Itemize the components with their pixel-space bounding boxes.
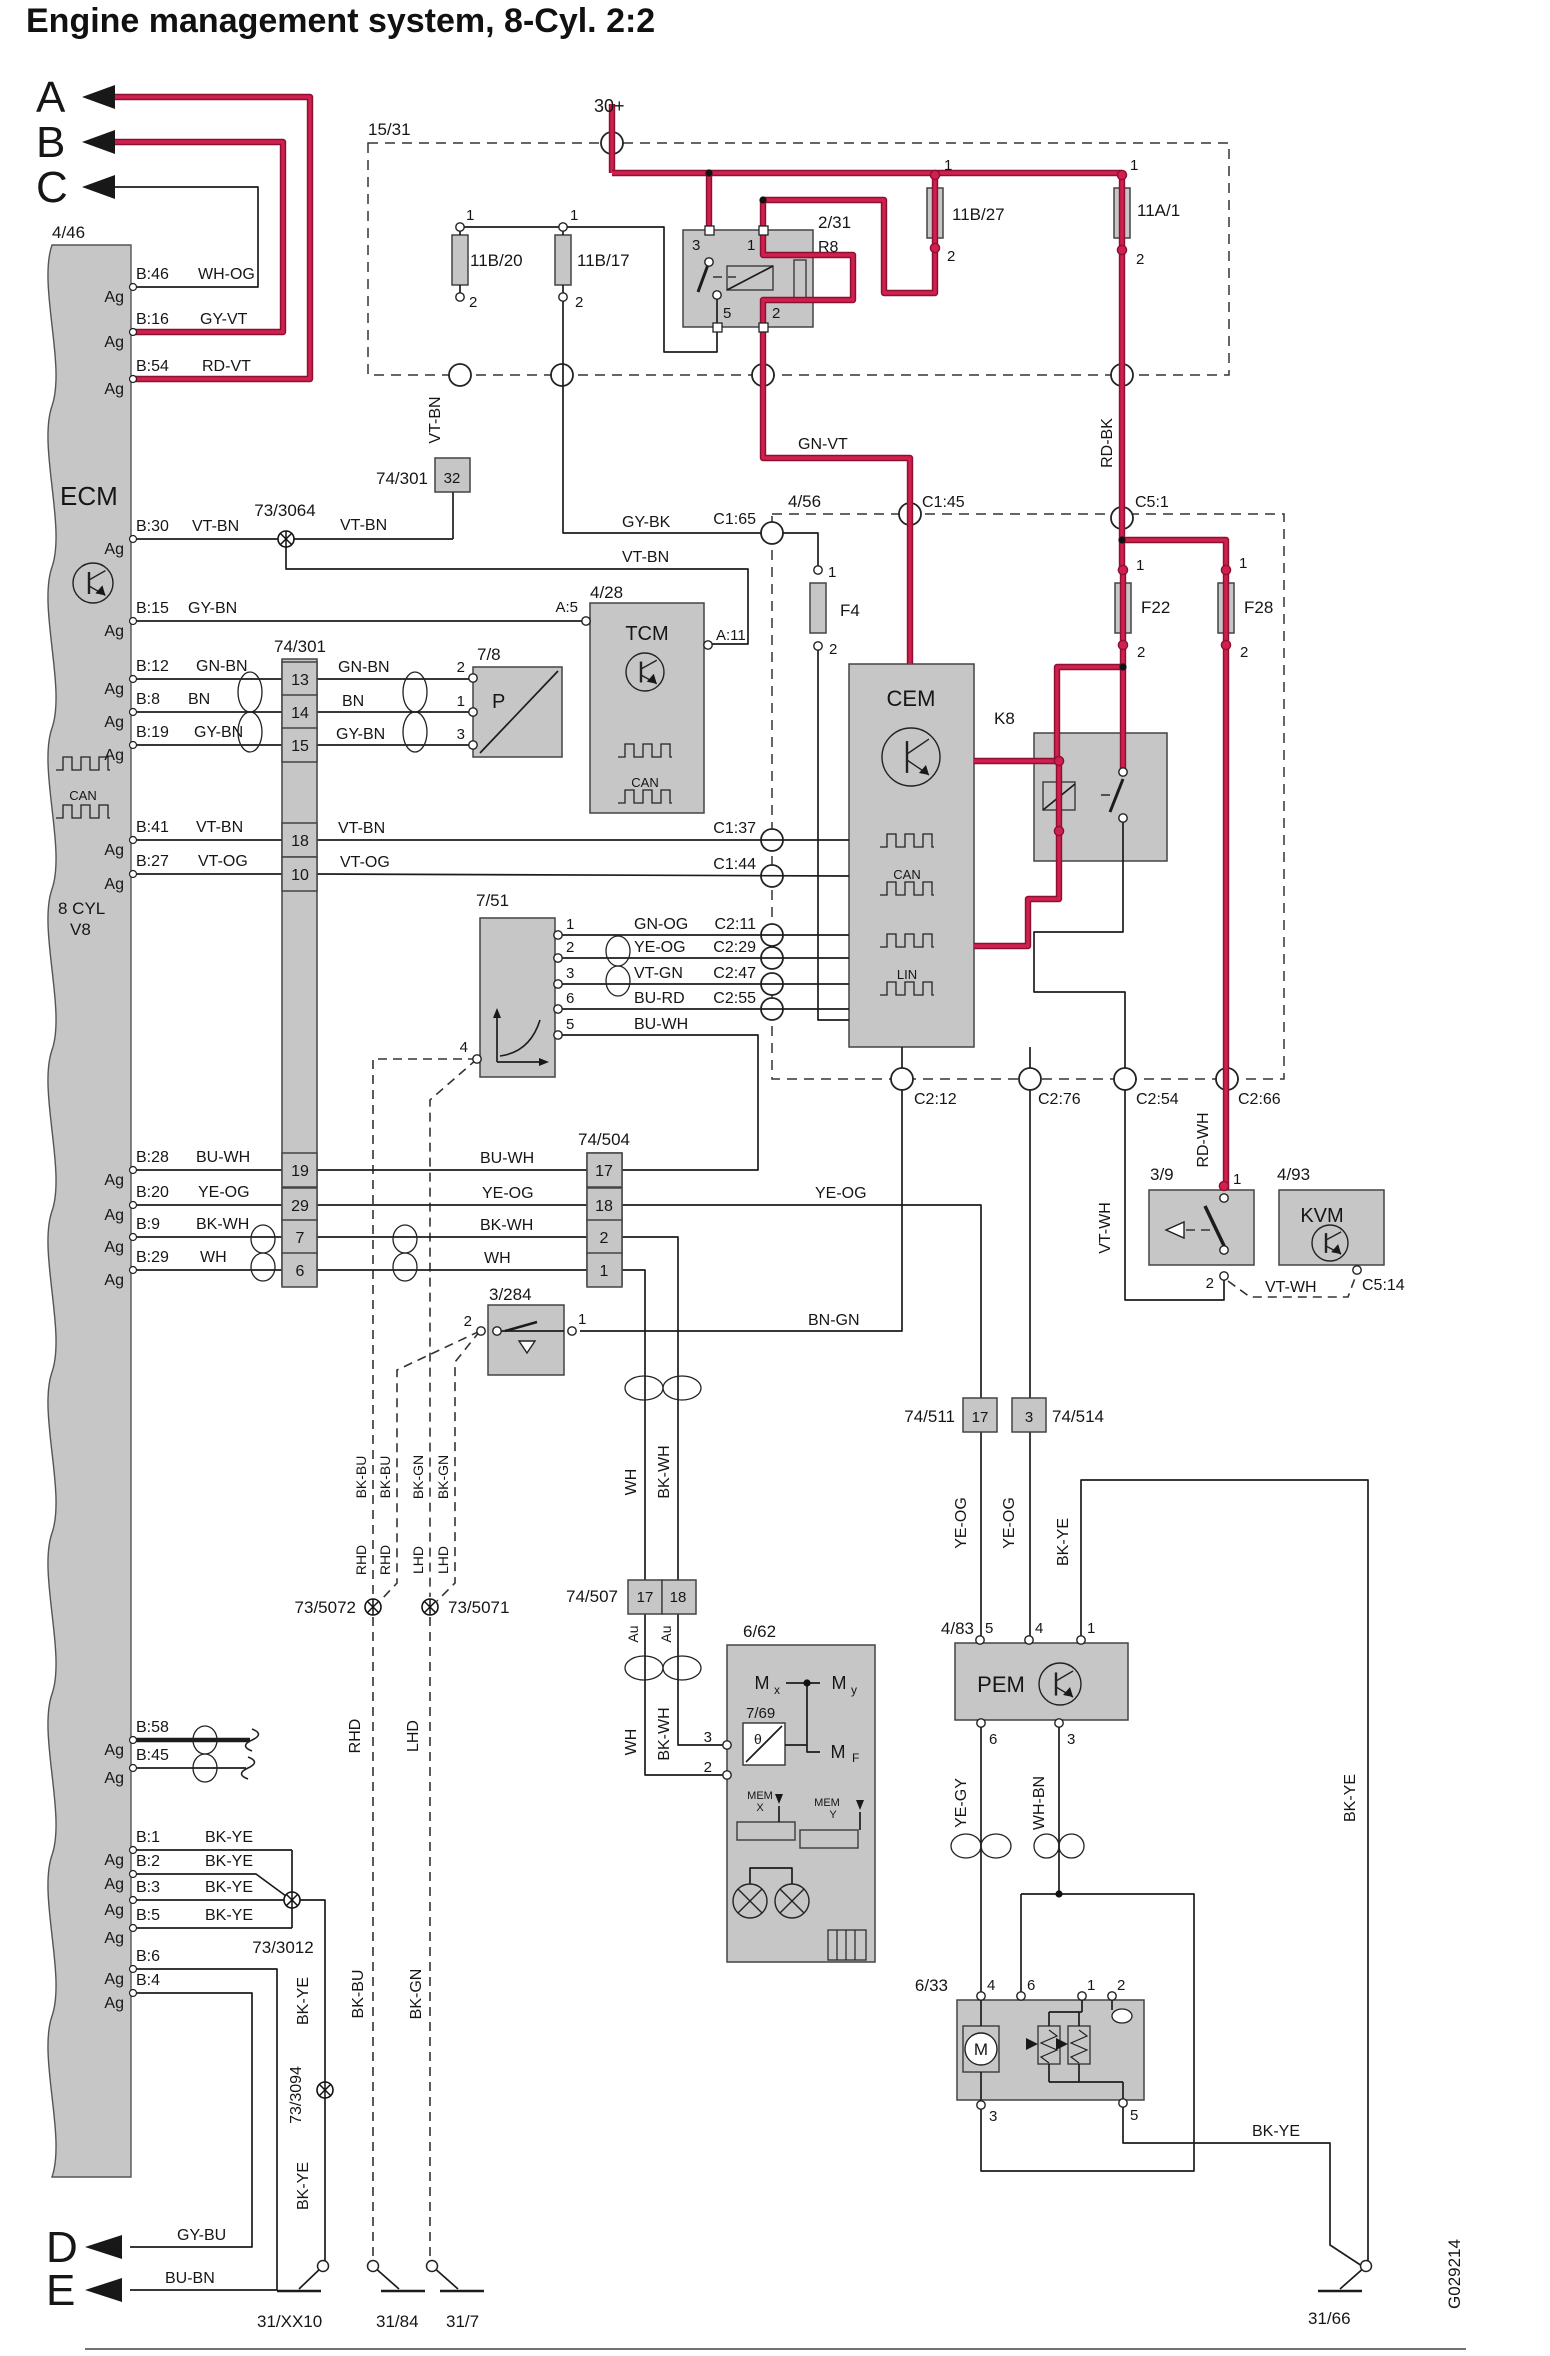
diagram-label: MEM bbox=[814, 1797, 840, 1809]
diagram-label: 7 bbox=[296, 1230, 305, 1247]
diagram-label: 18 bbox=[291, 833, 309, 850]
diagram-label: 73/5072 bbox=[295, 1598, 356, 1617]
wire-color-label: BK-YE bbox=[205, 1829, 253, 1846]
power-pin bbox=[1221, 640, 1230, 649]
diagram-label: VT-BN bbox=[338, 820, 385, 837]
diagram-label: BK-YE bbox=[1055, 1518, 1072, 1566]
diagram-label: C2:55 bbox=[713, 990, 756, 1007]
ecm-pin-B:16 bbox=[130, 329, 137, 336]
diagram-label: VT-BN bbox=[340, 517, 387, 534]
page-title: Engine management system, 8-Cyl. 2:2 bbox=[26, 2, 655, 41]
power-wire-outline bbox=[763, 327, 910, 664]
junction-dot bbox=[1118, 536, 1125, 543]
diagram-label: C2:66 bbox=[1238, 1091, 1281, 1108]
twisted-pair-icon bbox=[625, 1376, 663, 1400]
ecm-pin-name: B:28 bbox=[136, 1149, 169, 1166]
component-switch-3/9 bbox=[1149, 1190, 1254, 1265]
diagram-label: BK-GN bbox=[435, 1455, 451, 1499]
diagram-label: 2 bbox=[1240, 644, 1248, 661]
diagram-label: VT-BN bbox=[622, 549, 669, 566]
pin-circle bbox=[1017, 1992, 1025, 2000]
ecm-pin-ag-label: Ag bbox=[104, 1930, 124, 1947]
diagram-label: 3/9 bbox=[1150, 1165, 1174, 1184]
diagram-label: E bbox=[46, 2266, 75, 2315]
diagram-label: 18 bbox=[670, 1589, 687, 1606]
power-pin bbox=[930, 243, 939, 252]
diagram-label: K8 bbox=[994, 709, 1015, 728]
component-coil2-6/33 bbox=[1068, 2026, 1090, 2064]
ecm-pin-name: B:8 bbox=[136, 691, 160, 708]
diagram-label: YE-OG bbox=[815, 1185, 867, 1202]
diagram-label: 18 bbox=[595, 1198, 613, 1215]
diagram-label: BK-BU bbox=[353, 1456, 369, 1499]
ecm-pin-ag-label: Ag bbox=[104, 1207, 124, 1224]
diagram-label: F28 bbox=[1244, 598, 1273, 617]
diagram-label: 15 bbox=[291, 738, 309, 755]
arrow-icon bbox=[82, 130, 115, 154]
diagram-label: 1 bbox=[1136, 557, 1144, 574]
diagram-label: 4/46 bbox=[52, 223, 85, 242]
ecm-pin-name: B:45 bbox=[136, 1747, 169, 1764]
diagram-label: B bbox=[36, 118, 65, 167]
pin-circle bbox=[814, 566, 822, 574]
diagram-label: M bbox=[755, 1673, 770, 1693]
diagram-label: YE-OG bbox=[953, 1497, 970, 1549]
diagram-label: 19 bbox=[291, 1163, 309, 1180]
diagram-label: 2 bbox=[566, 939, 574, 956]
component-pot-memx bbox=[737, 1822, 795, 1840]
diagram-label: 6 bbox=[566, 990, 574, 1007]
diagram-label: C2:76 bbox=[1038, 1091, 1081, 1108]
diagram-label: 7/8 bbox=[477, 645, 501, 664]
ecm-pin-name: B:12 bbox=[136, 658, 169, 675]
ecm-pin-B:19 bbox=[130, 742, 137, 749]
ecm-pin-B:9 bbox=[130, 1234, 137, 1241]
diagram-label: 2 bbox=[772, 305, 780, 322]
ecm-pin-name: B:2 bbox=[136, 1853, 160, 1870]
diagram-label: X bbox=[756, 1802, 764, 1814]
diagram-label: 1 bbox=[1087, 1977, 1095, 1994]
twisted-pair-icon bbox=[606, 966, 630, 996]
diagram-label: 2 bbox=[1206, 1275, 1214, 1292]
diagram-label: WH bbox=[623, 1469, 640, 1496]
diagram-label: 3 bbox=[1067, 1731, 1075, 1748]
pin-circle bbox=[456, 223, 464, 231]
diagram-label: 11A/1 bbox=[1137, 201, 1180, 220]
wire bbox=[558, 1035, 758, 1170]
diagram-label: 14 bbox=[291, 705, 309, 722]
ecm-pin-B:58 bbox=[130, 1737, 137, 1744]
relay-pin-square bbox=[705, 226, 714, 235]
diagram-label: 74/301 bbox=[274, 637, 326, 656]
diagram-label: CEM bbox=[887, 686, 936, 711]
diagram-label: GN-BN bbox=[338, 659, 390, 676]
diagram-label: 4 bbox=[987, 1977, 995, 1994]
twisted-pair-icon bbox=[1059, 1834, 1084, 1858]
pin-circle bbox=[554, 931, 562, 939]
ground-terminal bbox=[318, 2261, 329, 2272]
pin-circle bbox=[977, 1992, 985, 2000]
wire bbox=[563, 297, 761, 533]
pin-circle bbox=[469, 708, 477, 716]
diagram-label: 74/301 bbox=[376, 469, 428, 488]
ecm-pin-B:29 bbox=[130, 1267, 137, 1274]
ecm-pin-ag-label: Ag bbox=[104, 1272, 124, 1289]
diagram-label: 17 bbox=[972, 1409, 989, 1426]
ecm-pin-B:3 bbox=[130, 1897, 137, 1904]
wire-color-label: BN bbox=[188, 691, 210, 708]
ground-terminal bbox=[427, 2261, 438, 2272]
diagram-label: 1 bbox=[600, 1263, 609, 1280]
diagram-label: 4 bbox=[460, 1039, 468, 1056]
diagram-label: θ bbox=[754, 1731, 762, 1747]
ecm-pin-name: B:54 bbox=[136, 358, 169, 375]
ecm-pin-name: B:9 bbox=[136, 1216, 160, 1233]
ecm-pin-name: B:20 bbox=[136, 1184, 169, 1201]
power-pin bbox=[1219, 1181, 1228, 1190]
twisted-pair-icon bbox=[403, 712, 427, 752]
wire-color-label: VT-BN bbox=[196, 819, 243, 836]
diagram-label: 6 bbox=[1027, 1977, 1035, 1994]
pin-circle bbox=[1108, 1992, 1116, 2000]
diagram-label: 2 bbox=[947, 248, 955, 265]
twisted-pair-icon bbox=[606, 936, 630, 966]
wire-color-label: GY-BN bbox=[188, 600, 237, 617]
pin-circle bbox=[456, 293, 464, 301]
sensor-icon bbox=[1112, 2009, 1132, 2023]
ecm-pin-B:4 bbox=[130, 1990, 137, 1997]
diagram-label: 5 bbox=[723, 305, 731, 322]
diagram-label: BU-BN bbox=[165, 2270, 215, 2287]
diagram-label: A bbox=[36, 73, 66, 122]
diagram-label: WH bbox=[623, 1729, 640, 1756]
wiring-diagram-page: Engine management system, 8-Cyl. 2:2 CAN… bbox=[0, 0, 1550, 2356]
pin-circle bbox=[1025, 1636, 1033, 1644]
arrow-icon bbox=[85, 2278, 122, 2302]
wire-color-label: GY-BN bbox=[194, 724, 243, 741]
diagram-label: BK-BU bbox=[377, 1456, 393, 1499]
wire bbox=[818, 646, 849, 1020]
diagram-label: 4/56 bbox=[788, 492, 821, 511]
diagram-label: GY-BK bbox=[622, 514, 671, 531]
junction-dot bbox=[1055, 1890, 1062, 1897]
diagram-label: Au bbox=[658, 1625, 674, 1642]
diagram-label: 6/33 bbox=[915, 1976, 948, 1995]
diagram-label: 1 bbox=[466, 207, 474, 224]
ecm-pin-ag-label: Ag bbox=[104, 1172, 124, 1189]
diagram-label: 15/31 bbox=[368, 120, 411, 139]
relay-pin-square bbox=[713, 323, 722, 332]
diagram-label: BK-YE bbox=[295, 2162, 312, 2210]
component-kvm-4/93 bbox=[1279, 1190, 1384, 1265]
diagram-label: RHD bbox=[377, 1545, 393, 1575]
wire bbox=[1081, 1480, 1368, 2262]
diagram-label: 74/511 bbox=[904, 1407, 955, 1426]
diagram-label: TCM bbox=[625, 623, 668, 645]
twisted-pair-icon bbox=[1034, 1834, 1059, 1858]
wire bbox=[622, 1270, 727, 1775]
ecm-pin-ag-label: Ag bbox=[104, 714, 124, 731]
diagram-label: 2 bbox=[704, 1759, 712, 1776]
diagram-label: BK-YE bbox=[1252, 2123, 1300, 2140]
pin-circle bbox=[554, 1031, 562, 1039]
diagram-label: 17 bbox=[637, 1589, 654, 1606]
wiring-diagram-canvas: CANCANCANLINMAgB:46WH-OGAgB:16GY-VTAgB:5… bbox=[0, 0, 1550, 2356]
diagram-label: 2 bbox=[575, 294, 583, 311]
diagram-label: RD-BK bbox=[1099, 418, 1116, 468]
diagram-label: BU-WH bbox=[634, 1016, 688, 1033]
diagram-label: ECM bbox=[60, 481, 118, 511]
diagram-label: BK-YE bbox=[1342, 1774, 1359, 1822]
diagram-label: Au bbox=[625, 1625, 641, 1642]
diagram-label: 32 bbox=[444, 470, 461, 487]
arrow-icon bbox=[85, 2235, 122, 2259]
ecm-pin-B:54 bbox=[130, 376, 137, 383]
diagram-label: M bbox=[831, 1742, 846, 1762]
bus-label: CAN bbox=[631, 775, 658, 790]
diagram-label: GY-BU bbox=[177, 2227, 226, 2244]
wire bbox=[580, 1090, 902, 1331]
junction-dot bbox=[1119, 663, 1126, 670]
diagram-label: R8 bbox=[818, 239, 839, 256]
terminal-circle bbox=[1019, 1068, 1041, 1090]
diagram-label: 10 bbox=[291, 867, 309, 884]
diagram-label: WH-BN bbox=[1031, 1776, 1048, 1830]
relay-pin-square bbox=[759, 226, 768, 235]
power-pin bbox=[930, 170, 939, 179]
diagram-label: 74/514 bbox=[1052, 1407, 1104, 1426]
pin-circle bbox=[554, 1005, 562, 1013]
power-pin bbox=[1118, 565, 1127, 574]
diagram-label: 1 bbox=[566, 916, 574, 933]
diagram-label: D bbox=[46, 2223, 78, 2272]
diagram-label: 1 bbox=[1239, 555, 1247, 572]
diagram-label: 3 bbox=[1025, 1409, 1033, 1426]
diagram-label: C bbox=[36, 163, 68, 212]
component-switch-3/284 bbox=[488, 1305, 564, 1375]
diagram-label: 13 bbox=[291, 672, 309, 689]
ground-terminal bbox=[1361, 2261, 1372, 2272]
ecm-pin-ag-label: Ag bbox=[104, 381, 124, 398]
diagram-label: 1 bbox=[578, 1311, 586, 1328]
bus-label: CAN bbox=[893, 867, 920, 882]
ecm-pin-ag-label: Ag bbox=[104, 876, 124, 893]
component-r8-resistor bbox=[794, 260, 806, 300]
diagram-label: GY-BN bbox=[336, 726, 385, 743]
ecm-pin-B:15 bbox=[130, 618, 137, 625]
ecm-pin-ag-label: Ag bbox=[104, 747, 124, 764]
power-pin bbox=[1118, 640, 1127, 649]
ecm-pin-name: B:58 bbox=[136, 1719, 169, 1736]
pin-circle bbox=[1078, 1992, 1086, 2000]
ecm-pin-B:30 bbox=[130, 536, 137, 543]
diagram-label: 8 CYL bbox=[58, 899, 105, 918]
diagram-label: 4 bbox=[1035, 1620, 1043, 1637]
twisted-pair-icon bbox=[251, 1253, 275, 1281]
ecm-pin-ag-label: Ag bbox=[104, 681, 124, 698]
bus-label: LIN bbox=[897, 967, 917, 982]
ecm-pin-name: B:29 bbox=[136, 1249, 169, 1266]
diagram-label: F4 bbox=[840, 601, 860, 620]
wire-color-label: BK-WH bbox=[196, 1216, 249, 1233]
component-fuse-11b17 bbox=[555, 235, 571, 285]
diagram-label: 5 bbox=[985, 1620, 993, 1637]
diagram-label: KVM bbox=[1300, 1205, 1343, 1227]
diagram-label: 1 bbox=[1087, 1620, 1095, 1637]
pin-circle bbox=[1220, 1194, 1228, 1202]
diagram-label: 31/XX10 bbox=[257, 2312, 322, 2331]
ecm-pin-ag-label: Ag bbox=[104, 541, 124, 558]
diagram-label: YE-OG bbox=[482, 1185, 534, 1202]
diagram-label: 2 bbox=[829, 641, 837, 658]
ecm-pin-name: B:41 bbox=[136, 819, 169, 836]
ecm-pin-name: B:5 bbox=[136, 1907, 160, 1924]
diagram-label: VT-WH bbox=[1097, 1202, 1114, 1254]
pin-circle bbox=[554, 980, 562, 988]
diagram-label: LHD bbox=[435, 1546, 451, 1574]
ecm-pin-ag-label: Ag bbox=[104, 623, 124, 640]
diagram-label: 1 bbox=[944, 157, 952, 174]
diagram-label: BK-WH bbox=[656, 1445, 673, 1498]
pin-circle bbox=[977, 2101, 985, 2109]
diagram-label: VT-WH bbox=[1265, 1279, 1317, 1296]
pin-circle bbox=[1220, 1272, 1228, 1280]
diagram-label: 4/28 bbox=[590, 583, 623, 602]
motor-label: M bbox=[974, 2040, 988, 2059]
component-pot-memy bbox=[800, 1830, 858, 1848]
pin-circle bbox=[814, 642, 822, 650]
bus-label: CAN bbox=[69, 788, 96, 803]
diagram-label: GN-OG bbox=[634, 916, 688, 933]
junction-dot bbox=[803, 1679, 810, 1686]
diagram-label: VT-GN bbox=[634, 965, 683, 982]
diagram-label: RHD bbox=[347, 1719, 364, 1754]
ecm-pin-B:8 bbox=[130, 709, 137, 716]
diagram-label: C2:29 bbox=[713, 939, 756, 956]
diagram-label: 31/84 bbox=[376, 2312, 419, 2331]
diagram-label: 31/7 bbox=[446, 2312, 479, 2331]
junction-dot bbox=[759, 196, 766, 203]
arrow-icon bbox=[82, 85, 115, 109]
diagram-label: RHD bbox=[353, 1545, 369, 1575]
pin-circle bbox=[1119, 814, 1127, 822]
pin-circle bbox=[976, 1636, 984, 1644]
terminal-circle bbox=[761, 522, 783, 544]
ground-terminal bbox=[368, 2261, 379, 2272]
diagram-label: 11B/17 bbox=[577, 251, 630, 270]
wire-color-label: BK-YE bbox=[205, 1853, 253, 1870]
ecm-pin-B:5 bbox=[130, 1925, 137, 1932]
diagram-label: 2 bbox=[1136, 251, 1144, 268]
diagram-label: 3 bbox=[704, 1729, 712, 1746]
diagram-label: C2:54 bbox=[1136, 1091, 1179, 1108]
diagram-label: BK-BU bbox=[350, 1970, 367, 2019]
diagram-label: BK-GN bbox=[408, 1969, 425, 2020]
diagram-label: YE-OG bbox=[634, 939, 686, 956]
component-fuse-11b20 bbox=[452, 235, 468, 285]
diagram-label: 30+ bbox=[594, 96, 625, 116]
ecm-pin-ag-label: Ag bbox=[104, 1971, 124, 1988]
ecm-pin-name: B:46 bbox=[136, 266, 169, 283]
ecm-pin-ag-label: Ag bbox=[104, 1995, 124, 2012]
diagram-label: BU-RD bbox=[634, 990, 685, 1007]
diagram-label: P bbox=[492, 691, 505, 713]
wire-color-label: YE-OG bbox=[198, 1184, 250, 1201]
wire-color-label: VT-BN bbox=[192, 518, 239, 535]
diagram-label: V8 bbox=[70, 920, 91, 939]
diagram-label: 3 bbox=[566, 965, 574, 982]
diagram-label: x bbox=[774, 1683, 780, 1697]
twisted-pair-icon bbox=[663, 1376, 701, 1400]
diagram-label: A:11 bbox=[716, 627, 746, 644]
wire-color-label: RD-VT bbox=[202, 358, 251, 375]
twisted-pair-icon bbox=[393, 1253, 417, 1281]
wire-color-label: BK-YE bbox=[205, 1907, 253, 1924]
ecm-pin-name: B:4 bbox=[136, 1972, 160, 1989]
diagram-label: BK-GN bbox=[410, 1455, 426, 1499]
ecm-pin-ag-label: Ag bbox=[104, 334, 124, 351]
diagram-label: C1:65 bbox=[713, 511, 756, 528]
diagram-label: 4/93 bbox=[1277, 1165, 1310, 1184]
diagram-label: 11B/27 bbox=[952, 205, 1005, 224]
power-pin bbox=[1054, 826, 1063, 835]
wire-color-label: VT-OG bbox=[198, 853, 248, 870]
diagram-label: 1 bbox=[457, 693, 465, 710]
terminal-circle bbox=[551, 364, 573, 386]
diagram-label: 7/69 bbox=[746, 1705, 775, 1722]
pin-circle bbox=[559, 293, 567, 301]
pin-circle bbox=[582, 617, 590, 625]
ecm-pin-name: B:30 bbox=[136, 518, 169, 535]
twisted-pair-icon bbox=[238, 672, 262, 712]
ecm-pin-B:28 bbox=[130, 1167, 137, 1174]
diagram-label: VT-OG bbox=[340, 854, 390, 871]
diagram-label: BN bbox=[342, 693, 364, 710]
pin-circle bbox=[568, 1327, 576, 1335]
ecm-pin-B:45 bbox=[130, 1765, 137, 1772]
diagram-label: 4/83 bbox=[941, 1619, 974, 1638]
diagram-label: VT-BN bbox=[427, 396, 444, 443]
ecm-pin-B:2 bbox=[130, 1871, 137, 1878]
component-cem bbox=[849, 664, 974, 1047]
terminal-circle bbox=[449, 364, 471, 386]
ecm-pin-B:27 bbox=[130, 871, 137, 878]
power-pin bbox=[1117, 170, 1126, 179]
pin-circle bbox=[554, 954, 562, 962]
diagram-label: 2 bbox=[600, 1230, 609, 1247]
diagram-label: 2 bbox=[1117, 1977, 1125, 1994]
ecm-pin-name: B:6 bbox=[136, 1948, 160, 1965]
diagram-label: 73/5071 bbox=[448, 1598, 509, 1617]
component-module-7/51 bbox=[480, 918, 555, 1077]
diagram-label: MEM bbox=[747, 1790, 773, 1802]
diagram-label: 3 bbox=[692, 237, 700, 254]
diagram-label: 6/62 bbox=[743, 1622, 776, 1641]
diagram-label: C1:45 bbox=[922, 494, 965, 511]
diagram-label: 2 bbox=[1137, 644, 1145, 661]
power-pin bbox=[1054, 756, 1063, 765]
twisted-pair-icon bbox=[625, 1656, 663, 1680]
pin-circle bbox=[1220, 1246, 1228, 1254]
diagram-label: GN-VT bbox=[798, 436, 848, 453]
diagram-label: BU-WH bbox=[480, 1150, 534, 1167]
diagram-label: A:5 bbox=[555, 599, 578, 616]
diagram-label: G029214 bbox=[1445, 2239, 1464, 2309]
pin-circle bbox=[1353, 1266, 1361, 1274]
pin-circle bbox=[723, 1771, 731, 1779]
ecm-pin-ag-label: Ag bbox=[104, 842, 124, 859]
diagram-label: LHD bbox=[410, 1546, 426, 1574]
